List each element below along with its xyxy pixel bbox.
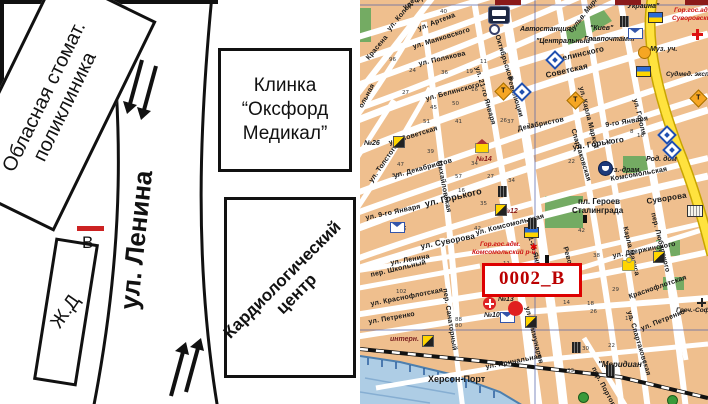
- place-label: интерн.: [390, 336, 419, 343]
- schematic-panel: Обласная стомат. поликлиника Клинка “Окс…: [0, 0, 360, 404]
- place-label: №10: [484, 312, 500, 319]
- place-label: Автостанция: [520, 26, 571, 33]
- place-label: Судмед. эксп.: [666, 72, 708, 79]
- entrance-marker-tick: [77, 226, 104, 231]
- reddot-icon: [508, 301, 523, 316]
- block-number: 36: [441, 71, 448, 77]
- block-number: 26: [590, 310, 597, 316]
- street-label: Красена: [365, 34, 389, 61]
- dred-icon: [685, 0, 708, 5]
- bus-icon: [488, 6, 510, 24]
- blackcross-icon: [697, 298, 706, 307]
- clinic-line2: “Оксфорд: [242, 98, 329, 122]
- block-number: 50: [452, 102, 459, 108]
- street-label: ольная: [360, 83, 377, 109]
- street-label: Декабристов: [517, 116, 565, 133]
- monu-icon: [545, 255, 549, 263]
- block-number: 96: [389, 58, 396, 64]
- block-number: 18: [587, 302, 594, 308]
- block-number: 16: [625, 317, 632, 323]
- block-number: 102: [396, 290, 407, 296]
- place-label: Суворовский р-н: [672, 16, 708, 23]
- block-number: 29: [612, 288, 619, 294]
- redcross-icon: [692, 29, 703, 40]
- greendot-icon: [578, 392, 589, 403]
- theater-icon: [598, 161, 613, 176]
- bldg-icon: [606, 365, 615, 376]
- place-label: №14: [476, 156, 492, 163]
- flag-icon: [648, 12, 663, 23]
- block-number: 47: [397, 163, 404, 169]
- railway-label: Ж.Д: [47, 291, 85, 333]
- bldg-icon: [498, 186, 507, 197]
- bldg-icon: [572, 342, 581, 353]
- env-icon: [628, 28, 643, 39]
- map-labels: ул. Фрунзеул. Артемаул. Маяковскогоул. П…: [360, 0, 708, 404]
- entrance-point-label: В: [82, 233, 93, 253]
- clinic-line1: Клинка: [242, 74, 329, 98]
- street-label: ул. 21-го Января: [473, 66, 496, 126]
- dred-icon: [495, 0, 521, 5]
- block-number: 39: [427, 150, 434, 156]
- place-label: Гор.гос.адм.: [480, 242, 520, 249]
- house-icon: [475, 143, 489, 153]
- yb-icon: [393, 136, 405, 148]
- block-number: 80: [455, 324, 462, 330]
- dred-icon: [615, 0, 641, 5]
- block-number: 19: [466, 70, 473, 76]
- yb-icon: [653, 251, 665, 263]
- block-number: 16: [458, 189, 465, 195]
- block-number: 10: [637, 134, 644, 140]
- flag-icon: [636, 66, 651, 77]
- yb-icon: [422, 335, 434, 347]
- street-label: ул. Полякова: [418, 50, 466, 68]
- block-number: 37: [507, 120, 514, 126]
- object-callout-badge[interactable]: 0002_В: [482, 263, 582, 297]
- street-label: Суворова: [646, 192, 687, 206]
- block-number: 34: [471, 162, 478, 168]
- block-number: 22: [608, 344, 615, 350]
- street-label: ул. Горького: [424, 187, 483, 209]
- oxford-medical-clinic-building: Клинка “Оксфорд Медикал”: [218, 48, 352, 172]
- place-label: Сталинграда: [572, 207, 623, 215]
- block-number: 11: [480, 60, 487, 66]
- bldg-icon: [528, 218, 537, 229]
- wbldg-icon: [687, 205, 703, 217]
- place-label: Муз. уч.: [650, 46, 677, 53]
- block-number: 34: [508, 179, 515, 185]
- street-label: ул. Суворова: [420, 232, 476, 250]
- street-label: ул. Петренко: [368, 311, 415, 326]
- yb-icon: [525, 316, 537, 328]
- redstar-icon: [530, 243, 538, 253]
- screenshot-stage: Обласная стомат. поликлиника Клинка “Окс…: [0, 0, 708, 404]
- block-number: 26: [500, 119, 507, 125]
- place-label: Гор.гос.адм.: [674, 8, 708, 15]
- block-number: 45: [430, 106, 437, 112]
- street-label: Октябрьской: [493, 34, 514, 81]
- block-number: 57: [455, 175, 462, 181]
- monu-icon: [583, 215, 587, 223]
- greendot-icon: [667, 395, 678, 404]
- circleT-icon: [638, 46, 651, 59]
- block-number: 22: [568, 160, 575, 166]
- block-number: 58: [392, 174, 399, 180]
- block-number: 8: [630, 130, 634, 136]
- block-number: 24: [409, 69, 416, 75]
- cardiology-center-building: Кардиологический центр: [224, 197, 356, 378]
- block-number: 27: [487, 175, 494, 181]
- place-label: пл. Героев: [578, 198, 620, 206]
- street-label: Краснофлотская: [628, 274, 688, 300]
- clinic-line3: Медикал”: [242, 122, 329, 146]
- bldg-icon: [620, 16, 629, 27]
- block-number: 33: [567, 369, 574, 375]
- place-label: "Киев": [590, 25, 613, 32]
- street-label: ул. Артема: [417, 12, 456, 33]
- street-label: ул. Причальная: [485, 353, 543, 371]
- block-number: 16: [471, 88, 478, 94]
- dmdT-icon: [689, 89, 707, 107]
- block-number: 27: [402, 91, 409, 97]
- place-label: Главпочтамт: [584, 36, 634, 43]
- place-label: №26: [364, 140, 380, 147]
- block-number: 15: [605, 140, 612, 146]
- crosscircle-icon: [483, 297, 496, 310]
- street-label: ул. Краснофлотская: [370, 287, 444, 308]
- block-number: 35: [480, 202, 487, 208]
- block-number: 41: [455, 120, 462, 126]
- street-label: ул. 9-го Января: [365, 203, 421, 221]
- place-label: Комсомольский р-н: [472, 250, 536, 257]
- env-icon: [390, 222, 405, 233]
- block-number: 40: [440, 10, 447, 16]
- place-label: Греч.-Соф.: [676, 308, 708, 315]
- block-number: 42: [578, 229, 585, 235]
- place-label: Херсон-Порт: [428, 375, 485, 384]
- church-icon: [622, 260, 635, 271]
- block-number: 42: [474, 227, 481, 233]
- block-number: 30: [582, 347, 589, 353]
- city-map: ул. Фрунзеул. Артемаул. Маяковскогоул. П…: [360, 0, 708, 404]
- block-number: 38: [593, 254, 600, 260]
- yb-icon: [495, 204, 507, 216]
- block-number: 14: [563, 301, 570, 307]
- block-number: 23: [527, 124, 534, 130]
- ring-icon: [489, 24, 500, 35]
- cardio-line1: Кардиологический: [220, 217, 346, 343]
- block-number: 51: [423, 120, 430, 126]
